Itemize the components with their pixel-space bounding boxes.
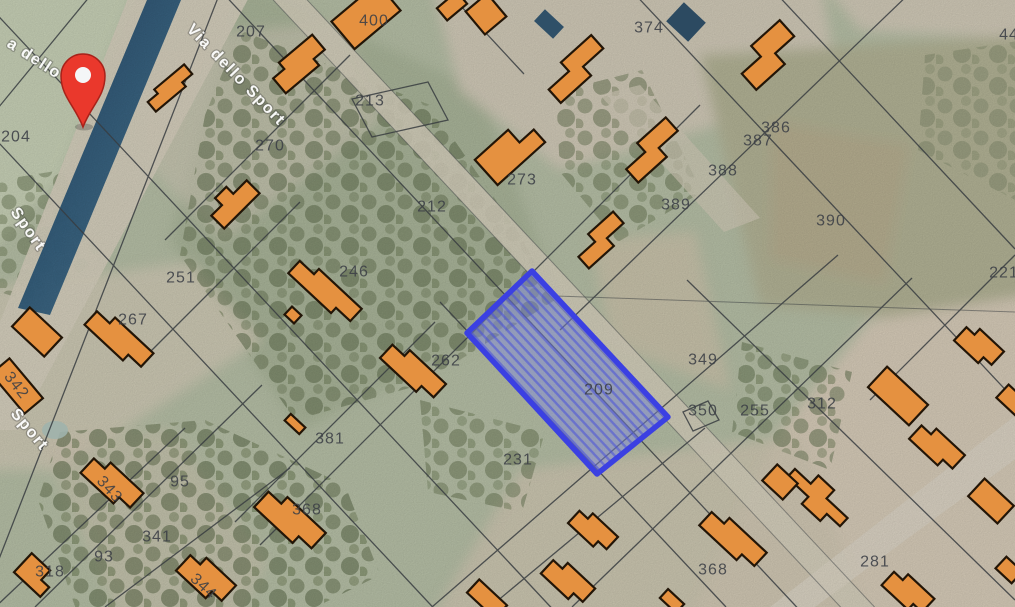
parcel-label-246: 246 — [339, 264, 369, 281]
parcel-label-95: 95 — [170, 474, 190, 491]
parcel-label-207: 207 — [236, 24, 266, 41]
map-image: 2042074003744421327038638738827338921239… — [0, 0, 1015, 607]
parcel-label-368: 368 — [292, 502, 322, 519]
parcel-label-381: 381 — [315, 431, 345, 448]
parcel-label-387: 387 — [743, 133, 773, 150]
parcel-label-231: 231 — [503, 452, 533, 469]
parcel-label-213: 213 — [355, 93, 385, 110]
parcel-label-312: 312 — [807, 396, 837, 413]
parcel-label-93: 93 — [94, 549, 114, 566]
parcel-label-390: 390 — [816, 213, 846, 230]
parcel-label-318: 318 — [35, 564, 65, 581]
parcel-label-341: 341 — [142, 529, 172, 546]
parcel-label-209: 209 — [584, 382, 614, 399]
parcel-label-350: 350 — [688, 403, 718, 420]
parcel-label-267: 267 — [118, 312, 148, 329]
parcel-label-270: 270 — [255, 138, 285, 155]
parcel-label-221: 221 — [989, 265, 1015, 282]
parcel-label-400: 400 — [359, 13, 389, 30]
map-pin-hole — [75, 67, 91, 83]
parcel-label-368: 368 — [698, 562, 728, 579]
parcel-label-281: 281 — [860, 554, 890, 571]
parcel-label-273: 273 — [507, 172, 537, 189]
parcel-label-374: 374 — [634, 20, 664, 37]
parcel-label-349: 349 — [688, 352, 718, 369]
parcel-label-212: 212 — [417, 199, 447, 216]
parcel-label-44: 44 — [999, 27, 1015, 44]
parcel-label-251: 251 — [166, 270, 196, 287]
parcel-label-262: 262 — [431, 353, 461, 370]
parcel-label-204: 204 — [1, 129, 31, 146]
parcel-label-255: 255 — [740, 403, 770, 420]
parcel-label-389: 389 — [661, 197, 691, 214]
map-canvas[interactable]: 2042074003744421327038638738827338921239… — [0, 0, 1015, 607]
parcel-label-388: 388 — [708, 163, 738, 180]
